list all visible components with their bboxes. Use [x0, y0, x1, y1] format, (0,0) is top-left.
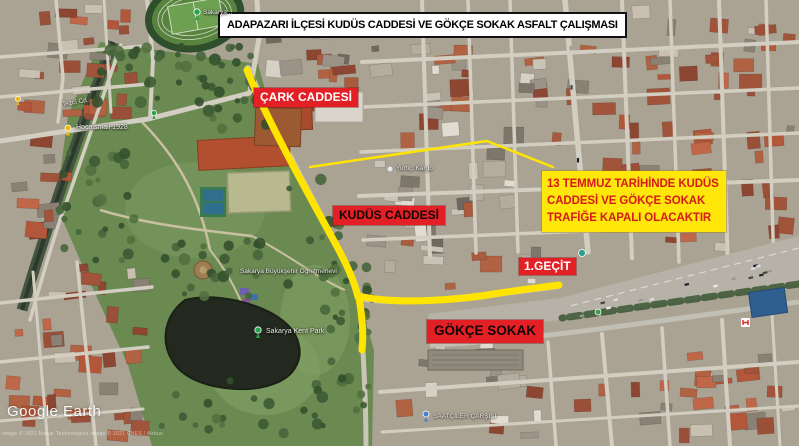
annotated-map-screenshot: ADAPAZARI İLÇESİ KUDÜS CADDESİ VE GÖKÇE …: [0, 0, 799, 446]
kargo-poi-icon: [387, 166, 393, 172]
page-title: ADAPAZARI İLÇESİ KUDÜS CADDESİ VE GÖKÇE …: [218, 12, 627, 38]
closure-notice-box: 13 TEMMUZ TARİHİNDE KUDÜS CADDESİ VE GÖK…: [542, 171, 726, 232]
map-label-ogretmenevi: Sakarya Büyükşehir Öğretmenevi: [240, 268, 337, 275]
map-label-yurtici-kargo: Yurtiçi Kargo: [396, 165, 433, 172]
map-label-stadium: Sakarya...: [203, 9, 232, 16]
map-label-kent-park: Sakarya Kent Park: [266, 328, 324, 335]
transit-poi-icon: [579, 250, 586, 257]
closure-notice-line: 13 TEMMUZ TARİHİNDE KUDÜS: [547, 176, 721, 193]
map-label-hocaismail: Hocaismail 1928: [76, 124, 128, 131]
street-label-1-gecit: 1.GEÇİT: [519, 258, 576, 275]
imagery-attribution: Image © 2021 Maxar Technologies Image © …: [2, 431, 163, 437]
map-label-carsi: SAATÇİLER ÇARŞISI: [433, 413, 496, 420]
hospital-icon: [741, 318, 750, 327]
street-label-kudus-caddesi: KUDÜS CADDESİ: [333, 206, 445, 225]
google-earth-watermark: Google Earth: [7, 403, 101, 420]
closure-notice-line: TRAFİĞE KAPALI OLACAKTIR: [547, 210, 721, 227]
street-label-cark-caddesi: ÇARK CADDESİ: [254, 88, 358, 107]
closure-notice-line: CADDESİ VE GÖKÇE SOKAK: [547, 193, 721, 210]
street-label-gokce-sokak: GÖKÇE SOKAK: [427, 320, 543, 343]
park-poi-icon: [595, 309, 601, 315]
